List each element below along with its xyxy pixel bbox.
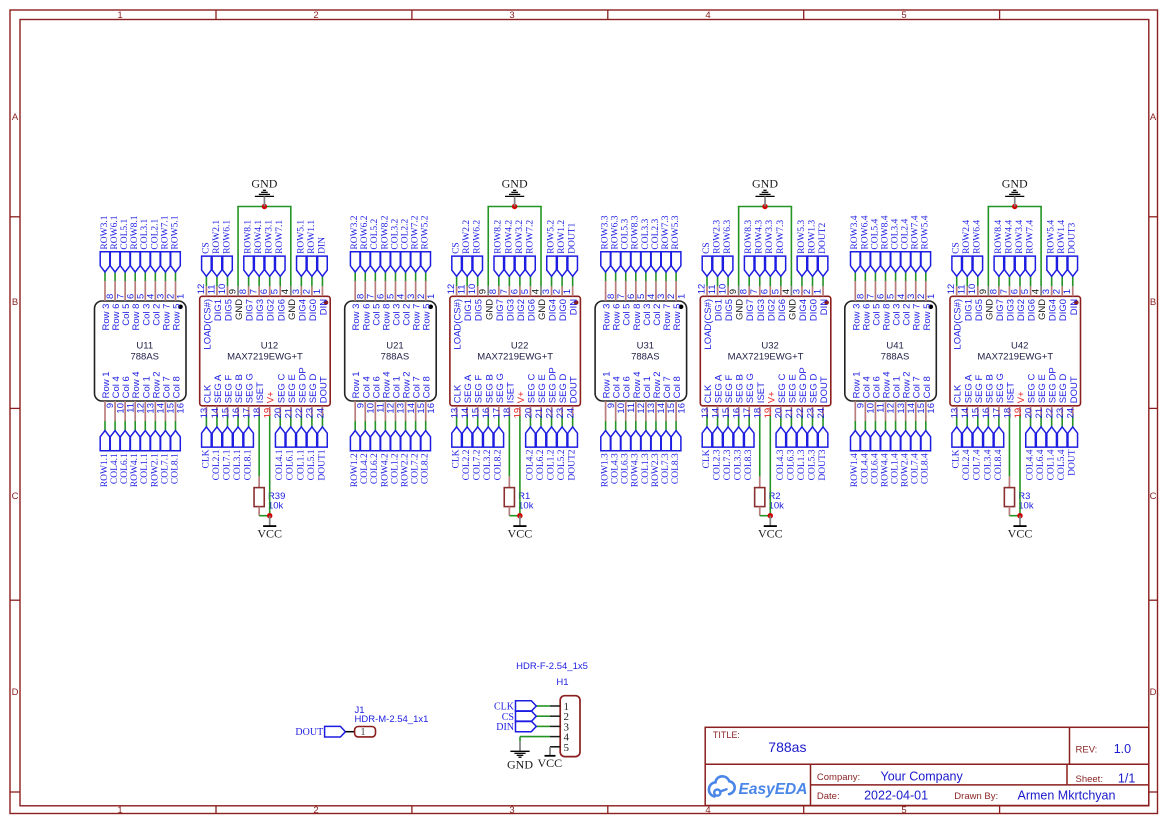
svg-text:COL7.4: COL7.4 (973, 449, 983, 480)
svg-text:ROW6.1: ROW6.1 (110, 215, 120, 249)
svg-text:HDR-F-2.54_1x5: HDR-F-2.54_1x5 (516, 661, 588, 672)
svg-text:10: 10 (718, 284, 729, 295)
svg-text:COL5.2: COL5.2 (370, 218, 380, 249)
svg-text:ROW3.1: ROW3.1 (100, 215, 110, 249)
svg-text:SEG C: SEG C (526, 373, 537, 403)
svg-text:9: 9 (978, 289, 989, 294)
svg-text:DIG7: DIG7 (995, 299, 1006, 321)
svg-text:Col 8: Col 8 (672, 376, 683, 398)
svg-text:COL8.4: COL8.4 (994, 449, 1004, 480)
svg-text:ROW2.3: ROW2.3 (651, 453, 661, 487)
svg-text:2: 2 (313, 10, 318, 21)
svg-text:11: 11 (206, 284, 217, 294)
svg-text:Your Company: Your Company (881, 769, 964, 783)
svg-text:1/1: 1/1 (1118, 771, 1135, 785)
svg-text:ROW5.2: ROW5.2 (421, 215, 431, 249)
svg-text:COL7.3: COL7.3 (723, 449, 733, 480)
svg-text:DIG5: DIG5 (974, 299, 985, 321)
svg-text:19: 19 (1013, 408, 1024, 419)
svg-text:COL3.1: COL3.1 (140, 218, 150, 249)
svg-text:DOUT: DOUT (819, 376, 830, 403)
svg-text:ROW3.4: ROW3.4 (1015, 220, 1025, 254)
svg-text:17: 17 (492, 408, 503, 419)
svg-text:SEG D: SEG D (308, 373, 319, 403)
svg-text:1: 1 (426, 294, 437, 299)
svg-text:ROW5.4: ROW5.4 (921, 215, 931, 249)
svg-text:ROW5.3: ROW5.3 (797, 220, 807, 254)
svg-text:ROW3.2: ROW3.2 (350, 215, 360, 249)
svg-text:SEG B: SEG B (234, 374, 245, 403)
svg-text:3: 3 (1041, 289, 1052, 294)
svg-text:VCC: VCC (758, 527, 783, 541)
svg-text:V+: V+ (516, 391, 527, 403)
svg-text:U41: U41 (886, 340, 903, 351)
svg-text:SEG G: SEG G (245, 373, 256, 403)
svg-text:COL6.3: COL6.3 (786, 449, 796, 480)
svg-text:CLK: CLK (202, 384, 213, 403)
svg-text:SEG A: SEG A (963, 374, 974, 403)
svg-text:18: 18 (252, 408, 263, 419)
svg-text:DIG2: DIG2 (266, 299, 277, 321)
svg-text:COL4.2: COL4.2 (360, 453, 370, 484)
svg-text:COL2.3: COL2.3 (651, 218, 661, 249)
svg-text:7: 7 (499, 289, 510, 294)
svg-text:788AS: 788AS (631, 351, 660, 362)
svg-text:13: 13 (700, 408, 711, 419)
svg-text:DOUT1: DOUT1 (568, 223, 578, 254)
svg-text:CS: CS (452, 242, 462, 254)
svg-text:COL8.3: COL8.3 (744, 449, 754, 480)
svg-text:D: D (1150, 687, 1157, 698)
svg-text:2022-04-01: 2022-04-01 (864, 788, 928, 802)
svg-text:14: 14 (460, 408, 471, 419)
svg-text:V+: V+ (766, 391, 777, 403)
svg-text:GND: GND (234, 299, 245, 320)
svg-text:22: 22 (294, 408, 305, 419)
svg-text:1: 1 (926, 294, 937, 299)
svg-text:SEG D: SEG D (1058, 373, 1069, 403)
svg-text:17: 17 (992, 408, 1003, 419)
svg-text:C: C (12, 491, 19, 502)
svg-text:COL1.2: COL1.2 (546, 449, 556, 480)
svg-text:U31: U31 (637, 340, 654, 351)
svg-text:MAX7219EWG+T: MAX7219EWG+T (227, 351, 303, 362)
svg-text:16: 16 (231, 408, 242, 419)
svg-text:SEG F: SEG F (724, 374, 735, 403)
svg-text:ROW8.3: ROW8.3 (744, 220, 754, 254)
svg-text:16: 16 (981, 408, 992, 419)
svg-text:COL3.3: COL3.3 (734, 449, 744, 480)
svg-text:ROW7.4: ROW7.4 (911, 215, 921, 249)
svg-text:CLK: CLK (952, 449, 962, 468)
svg-text:COL1.2: COL1.2 (390, 453, 400, 484)
svg-text:3: 3 (791, 289, 802, 294)
svg-text:COL1.3: COL1.3 (641, 453, 651, 484)
svg-text:ROW5.4: ROW5.4 (1047, 220, 1057, 254)
svg-text:U12: U12 (261, 340, 278, 351)
svg-text:SEG G: SEG G (995, 373, 1006, 403)
svg-text:3: 3 (291, 289, 302, 294)
svg-text:DOUT2: DOUT2 (818, 223, 828, 254)
svg-text:CLK: CLK (201, 449, 211, 468)
svg-text:DIG6: DIG6 (777, 299, 788, 321)
svg-text:GND: GND (1002, 176, 1028, 190)
svg-text:COL8.2: COL8.2 (494, 449, 504, 480)
svg-text:VCC: VCC (1008, 527, 1033, 541)
svg-text:9: 9 (227, 289, 238, 294)
svg-text:SEG C: SEG C (276, 373, 287, 403)
svg-text:SEG C: SEG C (1027, 373, 1038, 403)
svg-text:2: 2 (313, 805, 318, 816)
svg-text:ROW7.2: ROW7.2 (525, 220, 535, 254)
svg-text:ROW1.2: ROW1.2 (350, 453, 360, 487)
svg-text:10: 10 (217, 284, 228, 295)
svg-text:DIG3: DIG3 (255, 299, 266, 321)
svg-text:DIG0: DIG0 (558, 299, 569, 321)
svg-text:16: 16 (481, 408, 492, 419)
svg-text:12: 12 (946, 284, 957, 295)
svg-text:1: 1 (676, 294, 687, 299)
svg-text:8: 8 (988, 289, 999, 294)
svg-text:GND: GND (251, 176, 277, 190)
svg-text:ROW3.4: ROW3.4 (850, 215, 860, 249)
svg-text:5: 5 (1020, 289, 1031, 294)
svg-text:COL4.3: COL4.3 (776, 449, 786, 480)
svg-text:2: 2 (1052, 289, 1063, 294)
svg-text:11: 11 (457, 284, 468, 294)
svg-text:COL2.2: COL2.2 (400, 218, 410, 249)
svg-text:5: 5 (270, 289, 281, 294)
svg-text:20: 20 (523, 408, 534, 419)
svg-text:C: C (1150, 491, 1157, 502)
svg-text:Col 8: Col 8 (922, 376, 933, 398)
svg-text:6: 6 (509, 289, 520, 294)
svg-text:ROW3.1: ROW3.1 (265, 220, 275, 254)
svg-text:ROW6.4: ROW6.4 (973, 220, 983, 254)
svg-text:18: 18 (1002, 408, 1013, 419)
svg-text:DIG5: DIG5 (224, 299, 235, 321)
svg-text:CS: CS (702, 242, 712, 254)
svg-text:ROW6.2: ROW6.2 (473, 220, 483, 254)
svg-text:COL1.1: COL1.1 (296, 449, 306, 480)
svg-text:4: 4 (280, 289, 291, 294)
svg-text:COL3.1: COL3.1 (233, 449, 243, 480)
svg-text:TITLE:: TITLE: (713, 730, 740, 740)
svg-text:COL5.4: COL5.4 (870, 218, 880, 249)
svg-text:DIG4: DIG4 (798, 299, 809, 321)
svg-text:12: 12 (446, 284, 457, 295)
svg-text:1: 1 (312, 289, 323, 294)
svg-text:DIG5: DIG5 (474, 299, 485, 321)
svg-text:16: 16 (426, 403, 437, 414)
svg-text:5: 5 (770, 289, 781, 294)
svg-text:LOAD(CS#): LOAD(CS#) (703, 299, 714, 350)
svg-text:Company:: Company: (817, 772, 860, 783)
svg-text:DIG0: DIG0 (809, 299, 820, 321)
svg-text:DOUT1: DOUT1 (317, 449, 327, 480)
svg-text:MAX7219EWG+T: MAX7219EWG+T (728, 351, 804, 362)
svg-text:SEG D: SEG D (558, 373, 569, 403)
svg-text:ROW1.2: ROW1.2 (557, 220, 567, 254)
svg-text:DIG3: DIG3 (505, 299, 516, 321)
svg-text:GND: GND (484, 299, 495, 320)
svg-text:COL5.2: COL5.2 (557, 449, 567, 480)
svg-text:ROW8.2: ROW8.2 (380, 215, 390, 249)
svg-text:ISET: ISET (255, 382, 266, 403)
svg-text:COL7.2: COL7.2 (411, 453, 421, 484)
svg-text:ROW4.4: ROW4.4 (880, 453, 890, 487)
svg-text:20: 20 (1023, 408, 1034, 419)
svg-text:12: 12 (696, 284, 707, 295)
svg-text:U42: U42 (1011, 340, 1028, 351)
svg-text:1: 1 (117, 805, 122, 816)
svg-text:COL6.3: COL6.3 (621, 453, 631, 484)
svg-text:ROW2.2: ROW2.2 (400, 453, 410, 487)
svg-text:ROW5.3: ROW5.3 (671, 215, 681, 249)
svg-text:ROW7.3: ROW7.3 (776, 220, 786, 254)
svg-text:788AS: 788AS (881, 351, 910, 362)
svg-text:ISET: ISET (505, 382, 516, 403)
svg-text:DIG2: DIG2 (516, 299, 527, 321)
svg-text:788as: 788as (768, 739, 806, 755)
svg-text:ROW6.3: ROW6.3 (611, 215, 621, 249)
svg-text:DIN: DIN (819, 299, 830, 316)
svg-text:ROW8.4: ROW8.4 (880, 215, 890, 249)
svg-text:4: 4 (705, 10, 710, 21)
svg-text:Drawn By:: Drawn By: (954, 791, 998, 802)
svg-text:COL5.1: COL5.1 (307, 449, 317, 480)
svg-text:20: 20 (273, 408, 284, 419)
svg-text:B: B (1150, 297, 1156, 308)
svg-text:Row 5: Row 5 (171, 304, 182, 331)
svg-text:15: 15 (471, 408, 482, 419)
svg-text:SEG A: SEG A (463, 374, 474, 403)
svg-text:6: 6 (1009, 289, 1020, 294)
svg-text:Col 8: Col 8 (422, 376, 433, 398)
svg-text:COL8.1: COL8.1 (244, 449, 254, 480)
svg-text:COL7.2: COL7.2 (473, 449, 483, 480)
svg-text:DIG4: DIG4 (548, 299, 559, 321)
svg-text:COL1.4: COL1.4 (890, 453, 900, 484)
svg-text:DIG3: DIG3 (1005, 299, 1016, 321)
svg-text:DIG6: DIG6 (276, 299, 287, 321)
svg-text:DIG0: DIG0 (308, 299, 319, 321)
svg-text:CLK: CLK (453, 384, 464, 403)
svg-text:15: 15 (220, 408, 231, 419)
svg-text:ROW7.4: ROW7.4 (1025, 220, 1035, 254)
svg-text:1: 1 (176, 294, 187, 299)
svg-text:22: 22 (795, 408, 806, 419)
svg-text:DIG7: DIG7 (745, 299, 756, 321)
svg-text:13: 13 (199, 408, 210, 419)
svg-text:CLK: CLK (953, 384, 964, 403)
svg-text:DOUT: DOUT (318, 376, 329, 403)
svg-text:ROW4.2: ROW4.2 (504, 220, 514, 254)
svg-text:SEG DP: SEG DP (798, 367, 809, 403)
svg-text:V+: V+ (1016, 391, 1027, 403)
svg-text:16: 16 (676, 403, 687, 414)
svg-text:COL8.3: COL8.3 (671, 453, 681, 484)
svg-text:SEG A: SEG A (714, 374, 725, 403)
svg-text:COL3.2: COL3.2 (483, 449, 493, 480)
svg-text:ROW7.1: ROW7.1 (275, 220, 285, 254)
svg-text:DIG7: DIG7 (495, 299, 506, 321)
svg-text:ROW2.3: ROW2.3 (712, 220, 722, 254)
svg-text:5: 5 (564, 742, 570, 754)
svg-text:LOAD(CS#): LOAD(CS#) (202, 299, 213, 350)
svg-text:3: 3 (541, 289, 552, 294)
svg-text:9: 9 (478, 289, 489, 294)
svg-text:5: 5 (901, 805, 906, 816)
svg-text:COL6.2: COL6.2 (536, 449, 546, 480)
svg-text:10: 10 (467, 284, 478, 295)
svg-text:3: 3 (509, 10, 514, 21)
svg-text:Row 5: Row 5 (922, 304, 933, 331)
svg-text:19: 19 (513, 408, 524, 419)
svg-text:18: 18 (753, 408, 764, 419)
svg-text:ROW1.4: ROW1.4 (850, 453, 860, 487)
svg-text:13: 13 (950, 408, 961, 419)
svg-text:DIG6: DIG6 (1027, 299, 1038, 321)
svg-text:1: 1 (117, 10, 122, 21)
svg-text:CLK: CLK (703, 384, 714, 403)
svg-text:ROW5.2: ROW5.2 (546, 220, 556, 254)
svg-text:5: 5 (520, 289, 531, 294)
svg-text:COL6.4: COL6.4 (870, 453, 880, 484)
svg-text:8: 8 (739, 289, 750, 294)
svg-text:15: 15 (971, 408, 982, 419)
svg-text:SEG F: SEG F (224, 374, 235, 403)
svg-text:ROW3.3: ROW3.3 (765, 220, 775, 254)
svg-text:24: 24 (565, 408, 576, 419)
svg-text:SEG C: SEG C (777, 373, 788, 403)
svg-text:SEG B: SEG B (735, 374, 746, 403)
svg-text:COL6.1: COL6.1 (120, 453, 130, 484)
svg-text:CLK: CLK (452, 449, 462, 468)
svg-text:DIG3: DIG3 (756, 299, 767, 321)
svg-text:Row 5: Row 5 (422, 304, 433, 331)
svg-text:15: 15 (721, 408, 732, 419)
svg-text:SEG D: SEG D (809, 373, 820, 403)
svg-text:7: 7 (249, 289, 260, 294)
svg-text:COL8.2: COL8.2 (421, 453, 431, 484)
svg-text:GND: GND (502, 176, 528, 190)
svg-text:COL8.1: COL8.1 (170, 453, 180, 484)
svg-text:COL5.3: COL5.3 (621, 218, 631, 249)
svg-text:COL5.3: COL5.3 (807, 449, 817, 480)
svg-text:GND: GND (1037, 299, 1048, 320)
svg-text:DOUT: DOUT (1068, 449, 1078, 476)
svg-text:COL2.1: COL2.1 (150, 218, 160, 249)
svg-text:ROW7.2: ROW7.2 (411, 215, 421, 249)
svg-text:MAX7219EWG+T: MAX7219EWG+T (477, 351, 553, 362)
svg-text:DIN: DIN (318, 299, 329, 316)
svg-text:24: 24 (1066, 408, 1077, 419)
svg-text:VCC: VCC (257, 527, 282, 541)
svg-text:7: 7 (749, 289, 760, 294)
svg-text:COL2.3: COL2.3 (712, 449, 722, 480)
svg-text:HDR-M-2.54_1x1: HDR-M-2.54_1x1 (355, 714, 429, 725)
svg-text:D: D (12, 687, 19, 698)
svg-text:DIG7: DIG7 (245, 299, 256, 321)
svg-text:ROW8.2: ROW8.2 (494, 220, 504, 254)
svg-text:20: 20 (774, 408, 785, 419)
svg-text:ROW1.3: ROW1.3 (807, 220, 817, 254)
svg-text:2: 2 (301, 289, 312, 294)
svg-text:COL4.1: COL4.1 (110, 453, 120, 484)
svg-text:ROW8.4: ROW8.4 (994, 220, 1004, 254)
svg-text:21: 21 (1034, 408, 1045, 419)
svg-text:DIG2: DIG2 (766, 299, 777, 321)
svg-text:GND: GND (507, 758, 533, 772)
svg-text:COL2.1: COL2.1 (212, 449, 222, 480)
svg-text:1.0: 1.0 (1114, 742, 1131, 756)
svg-text:10: 10 (967, 284, 978, 295)
svg-text:16: 16 (176, 403, 187, 414)
svg-text:8: 8 (238, 289, 249, 294)
svg-text:1: 1 (360, 727, 365, 738)
svg-text:SEG DP: SEG DP (297, 367, 308, 403)
svg-text:DIG0: DIG0 (1058, 299, 1069, 321)
svg-text:17: 17 (742, 408, 753, 419)
svg-text:21: 21 (284, 408, 295, 419)
svg-text:SEG G: SEG G (495, 373, 506, 403)
svg-text:ROW6.4: ROW6.4 (860, 215, 870, 249)
svg-text:DOUT3: DOUT3 (1068, 223, 1078, 254)
svg-text:EasyEDA: EasyEDA (739, 781, 808, 798)
svg-text:CS: CS (201, 242, 211, 254)
svg-text:COL3.3: COL3.3 (641, 218, 651, 249)
svg-text:ROW2.4: ROW2.4 (962, 220, 972, 254)
svg-text:ROW2.1: ROW2.1 (212, 220, 222, 254)
svg-text:COL7.1: COL7.1 (222, 449, 232, 480)
svg-text:COL5.1: COL5.1 (120, 218, 130, 249)
svg-text:DOUT: DOUT (1069, 376, 1080, 403)
svg-text:ROW5.1: ROW5.1 (296, 220, 306, 254)
svg-text:DIG1: DIG1 (213, 299, 224, 321)
svg-text:ROW7.3: ROW7.3 (661, 215, 671, 249)
svg-text:ROW3.2: ROW3.2 (515, 220, 525, 254)
svg-text:ROW6.1: ROW6.1 (222, 220, 232, 254)
svg-text:DIN: DIN (496, 722, 514, 733)
svg-text:ROW8.3: ROW8.3 (631, 215, 641, 249)
svg-text:ROW2.2: ROW2.2 (462, 220, 472, 254)
svg-text:SEG E: SEG E (287, 374, 298, 403)
svg-text:GND: GND (787, 299, 798, 320)
svg-text:4: 4 (781, 289, 792, 294)
svg-text:SEG DP: SEG DP (548, 367, 559, 403)
svg-text:A: A (12, 112, 19, 123)
svg-text:4: 4 (530, 289, 541, 294)
svg-text:DOUT: DOUT (295, 727, 323, 738)
svg-text:21: 21 (784, 408, 795, 419)
svg-text:6: 6 (760, 289, 771, 294)
svg-text:ROW1.1: ROW1.1 (307, 220, 317, 254)
svg-text:ROW2.1: ROW2.1 (150, 453, 160, 487)
svg-text:DIG4: DIG4 (1048, 299, 1059, 321)
svg-text:COL6.4: COL6.4 (1036, 449, 1046, 480)
svg-text:DIG5: DIG5 (724, 299, 735, 321)
svg-text:SEG F: SEG F (974, 374, 985, 403)
svg-text:U22: U22 (511, 340, 528, 351)
svg-text:VCC: VCC (537, 756, 562, 770)
svg-text:SEG B: SEG B (984, 374, 995, 403)
svg-text:COL2.2: COL2.2 (462, 449, 472, 480)
svg-text:16: 16 (731, 408, 742, 419)
svg-text:COL3.2: COL3.2 (390, 218, 400, 249)
svg-text:9: 9 (728, 289, 739, 294)
svg-text:COL6.2: COL6.2 (370, 453, 380, 484)
